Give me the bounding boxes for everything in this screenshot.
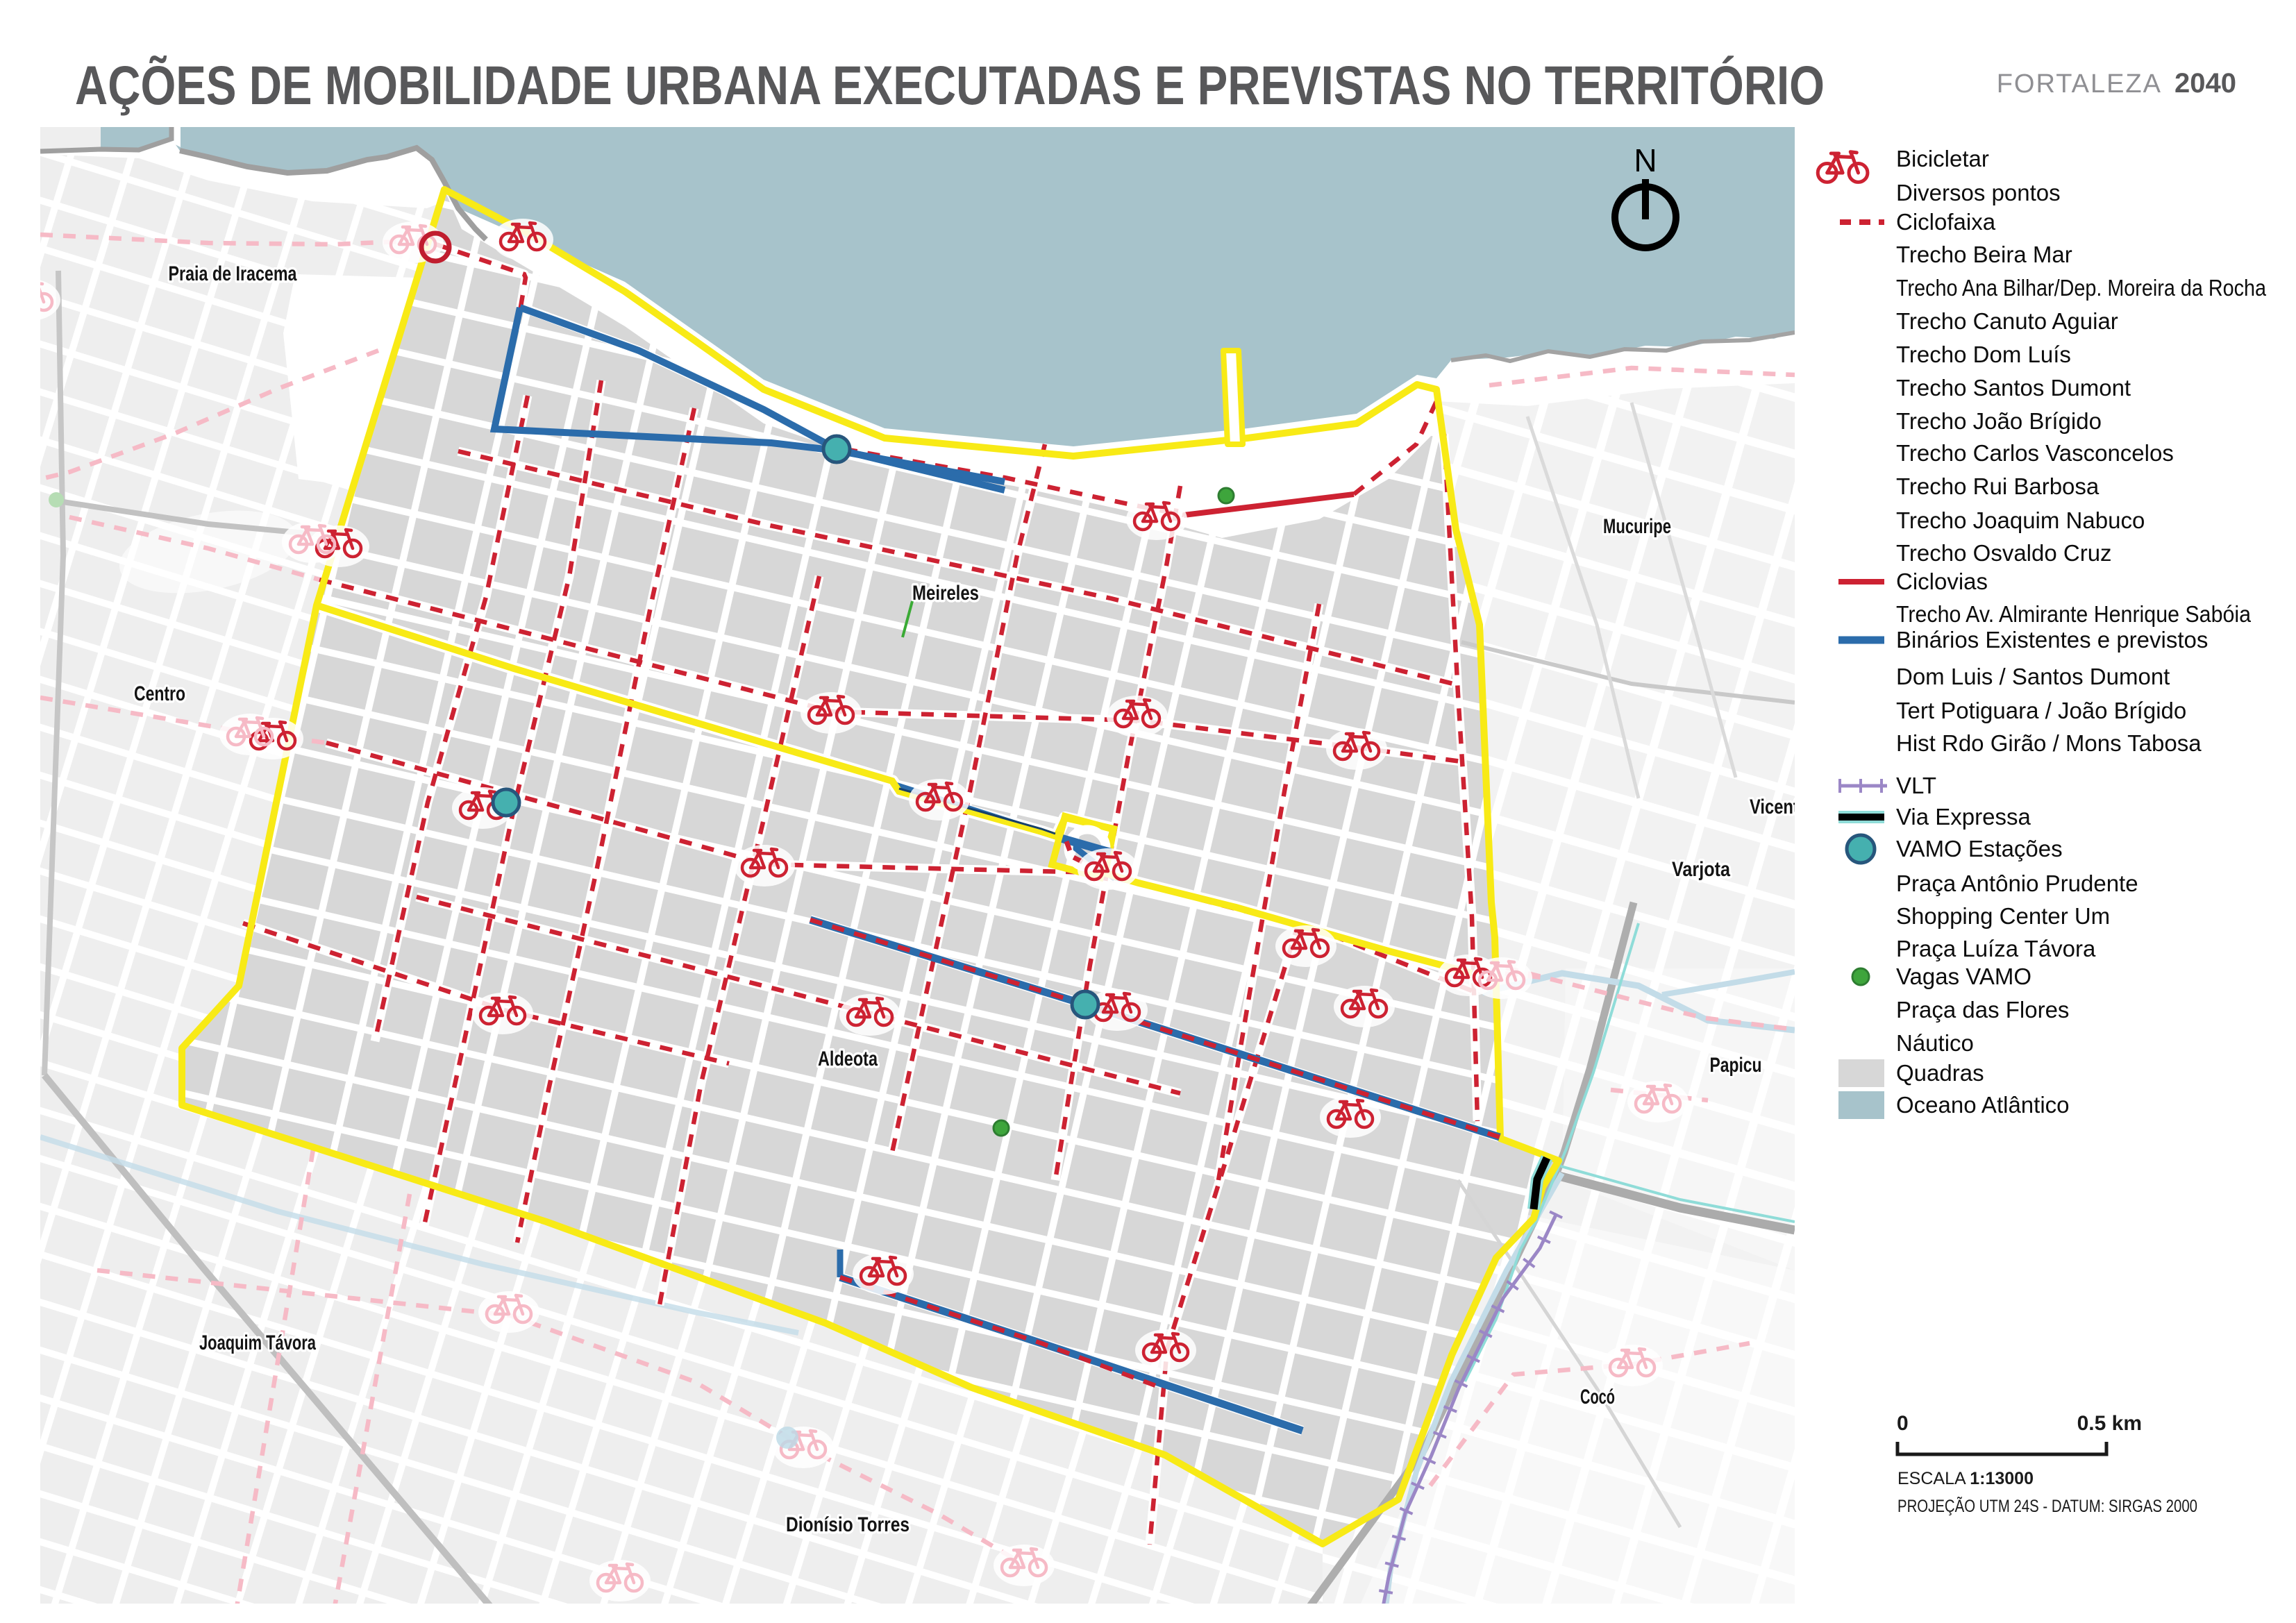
svg-text:Ciclofaixa: Ciclofaixa	[1896, 209, 1996, 235]
svg-text:Trecho Rui Barbosa: Trecho Rui Barbosa	[1896, 473, 2100, 499]
svg-text:ESCALA 1:13000: ESCALA 1:13000	[1897, 1469, 2034, 1488]
svg-text:VLT: VLT	[1896, 773, 1936, 798]
svg-text:Joaquim Távora: Joaquim Távora	[199, 1331, 316, 1354]
svg-text:Trecho Santos Dumont: Trecho Santos Dumont	[1896, 375, 2131, 401]
svg-text:Meireles: Meireles	[912, 582, 979, 605]
svg-text:AÇÕES DE MOBILIDADE URBANA EXE: AÇÕES DE MOBILIDADE URBANA EXECUTADAS E …	[75, 54, 1825, 116]
svg-text:Praça Antônio Prudente: Praça Antônio Prudente	[1896, 871, 2138, 896]
svg-text:Diversos pontos: Diversos pontos	[1896, 180, 2061, 205]
svg-text:Oceano Atlântico: Oceano Atlântico	[1896, 1092, 2070, 1118]
svg-text:Varjota: Varjota	[1672, 858, 1730, 881]
svg-text:Trecho Osvaldo Cruz: Trecho Osvaldo Cruz	[1896, 540, 2112, 566]
svg-text:Praça Luíza Távora: Praça Luíza Távora	[1896, 936, 2096, 961]
svg-text:0: 0	[1897, 1412, 1909, 1435]
svg-text:Trecho Joaquim Nabuco: Trecho Joaquim Nabuco	[1896, 507, 2145, 533]
svg-text:Trecho Beira Mar: Trecho Beira Mar	[1896, 242, 2072, 267]
svg-text:Trecho Av. Almirante Henrique: Trecho Av. Almirante Henrique Sabóia	[1896, 601, 2252, 627]
svg-text:Dom Luis / Santos Dumont: Dom Luis / Santos Dumont	[1896, 664, 2170, 689]
svg-text:VAMO Estações: VAMO Estações	[1896, 836, 2063, 861]
svg-text:Shopping Center Um: Shopping Center Um	[1896, 903, 2110, 929]
svg-text:Trecho Dom Luís: Trecho Dom Luís	[1896, 342, 2071, 367]
svg-text:Praça das Flores: Praça das Flores	[1896, 997, 2069, 1023]
svg-text:Tert Potiguara / João Brígido: Tert Potiguara / João Brígido	[1896, 698, 2186, 723]
svg-text:Náutico: Náutico	[1896, 1030, 1974, 1056]
svg-text:N: N	[1634, 142, 1657, 178]
svg-text:PROJEÇÃO UTM 24S - DATUM: SIRG: PROJEÇÃO UTM 24S - DATUM: SIRGAS 2000	[1897, 1496, 2197, 1516]
svg-text:FORTALEZA: FORTALEZA	[1997, 69, 2162, 99]
svg-text:Cocó: Cocó	[1580, 1386, 1615, 1408]
svg-text:Trecho João Brígido: Trecho João Brígido	[1896, 408, 2102, 434]
svg-text:Trecho Canuto Aguiar: Trecho Canuto Aguiar	[1896, 308, 2118, 334]
svg-text:Trecho Ana Bilhar/Dep. Moreira: Trecho Ana Bilhar/Dep. Moreira da Rocha	[1896, 275, 2267, 301]
svg-text:Via Expressa: Via Expressa	[1896, 804, 2031, 830]
svg-text:Ciclovias: Ciclovias	[1896, 569, 1988, 594]
svg-text:Quadras: Quadras	[1896, 1060, 1984, 1086]
svg-text:Dionísio Torres: Dionísio Torres	[786, 1513, 910, 1536]
svg-text:Bicicletar: Bicicletar	[1896, 146, 1989, 171]
svg-text:Centro: Centro	[134, 682, 185, 705]
svg-text:Hist Rdo Girão / Mons Tabosa: Hist Rdo Girão / Mons Tabosa	[1896, 730, 2202, 756]
svg-text:2040: 2040	[2175, 68, 2236, 99]
svg-text:Binários Existentes e previsto: Binários Existentes e previstos	[1896, 627, 2208, 653]
svg-text:Praia de Iracema: Praia de Iracema	[169, 262, 297, 285]
svg-text:Aldeota: Aldeota	[818, 1048, 878, 1070]
svg-text:0.5 km: 0.5 km	[2077, 1412, 2142, 1435]
svg-text:Papicu: Papicu	[1710, 1054, 1762, 1077]
svg-text:Trecho Carlos Vasconcelos: Trecho Carlos Vasconcelos	[1896, 440, 2174, 466]
svg-text:Vagas VAMO: Vagas VAMO	[1896, 964, 2031, 989]
svg-text:Mucuripe: Mucuripe	[1603, 515, 1671, 538]
